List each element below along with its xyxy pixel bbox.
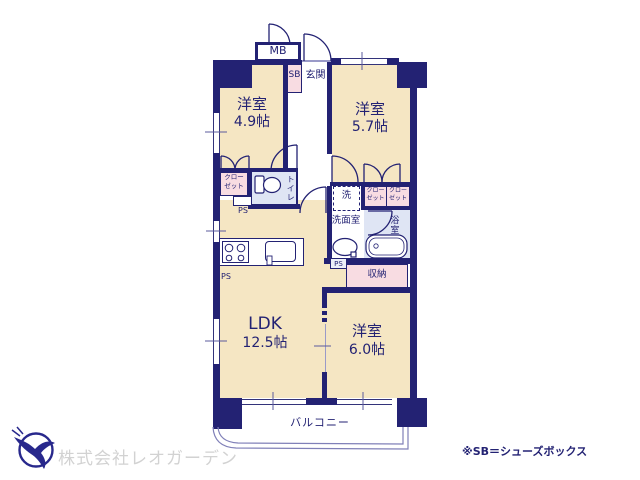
kitchen-sink — [265, 241, 296, 262]
company-logo — [12, 427, 55, 469]
wall-ldk-60-dashed — [322, 304, 327, 324]
wall-closet-toilet-top — [220, 168, 298, 172]
wall-corner-bottom-right — [397, 398, 427, 427]
wall-toilet-bottom — [248, 204, 300, 209]
window-bottom-60 — [337, 399, 392, 405]
ldk-name: LDK — [230, 315, 300, 335]
closet49-label-2: ゼット — [220, 183, 248, 190]
balcony-label: バルコニー — [283, 417, 357, 430]
closet57b-label-1: クロー — [386, 188, 410, 195]
room60-size: 6.0帖 — [336, 342, 398, 358]
wall-left-1 — [213, 88, 220, 113]
wall-closets-bottom — [361, 206, 410, 210]
company-name: 株式会社レオガーデン — [58, 450, 318, 470]
wall-corner-top-left — [213, 60, 252, 88]
sb-note: ※SB＝シューズボックス — [462, 446, 632, 459]
wall-corner-bottom-left — [213, 398, 242, 429]
washroom-label: 洗面室 — [329, 216, 363, 227]
closet57a-label-2: ゼット — [364, 196, 387, 203]
room49-size: 4.9帖 — [224, 114, 280, 130]
closet49-label-1: クロー — [220, 174, 248, 181]
room60-name: 洋室 — [336, 323, 398, 340]
opening-ldk-60 — [325, 324, 326, 372]
window-top-57 — [341, 58, 387, 65]
room49-name: 洋室 — [224, 96, 280, 113]
mb-label: MB — [255, 45, 301, 58]
bathroom-room — [364, 210, 410, 260]
washer-label: 洗 — [338, 191, 355, 202]
logo-bird-icon — [14, 437, 55, 469]
entrance-door-arc — [304, 34, 331, 61]
wall-57-bottom — [330, 182, 410, 186]
bathroom-label: 浴室 — [388, 211, 398, 238]
wall-left-4 — [213, 364, 220, 400]
wall-ldk-60-a — [322, 287, 327, 304]
window-left-ldk — [213, 319, 220, 364]
wall-right — [410, 88, 417, 398]
closet57a-label-1: クロー — [364, 188, 387, 195]
ps-label-3: PS — [216, 272, 236, 281]
ps-label-1: PS — [234, 206, 252, 215]
wall-bottom-mid — [306, 398, 337, 405]
room57-name: 洋室 — [342, 101, 398, 118]
logo-beak-icon — [12, 427, 23, 436]
wall-corner-top-right — [397, 62, 427, 88]
toilet-label: トイレ — [286, 173, 295, 203]
room-ldk-floor — [220, 200, 327, 398]
logo-circle — [20, 434, 53, 467]
window-bottom-ldk — [242, 399, 306, 405]
ldk-size: 12.5帖 — [230, 335, 300, 351]
entrance-label: 玄関 — [301, 70, 330, 82]
floorplan-canvas: MB SB 玄関 洋室 4.9帖 洋室 5.7帖 クロー ゼット トイレ PS … — [0, 0, 640, 480]
ps-step-box — [233, 196, 252, 206]
closet57b-label-2: ゼット — [386, 196, 410, 203]
wall-top-2 — [331, 58, 341, 65]
wall-ldk-60-b — [322, 372, 327, 398]
room57-size: 5.7帖 — [342, 119, 398, 135]
storage-label: 収納 — [346, 270, 408, 281]
wall-storage-bottom — [322, 287, 410, 293]
stove — [222, 241, 249, 263]
window-left-49 — [213, 113, 220, 153]
ps-label-2: PS — [330, 260, 347, 268]
balcony-railing — [213, 427, 408, 449]
wall-left-2 — [213, 153, 220, 221]
